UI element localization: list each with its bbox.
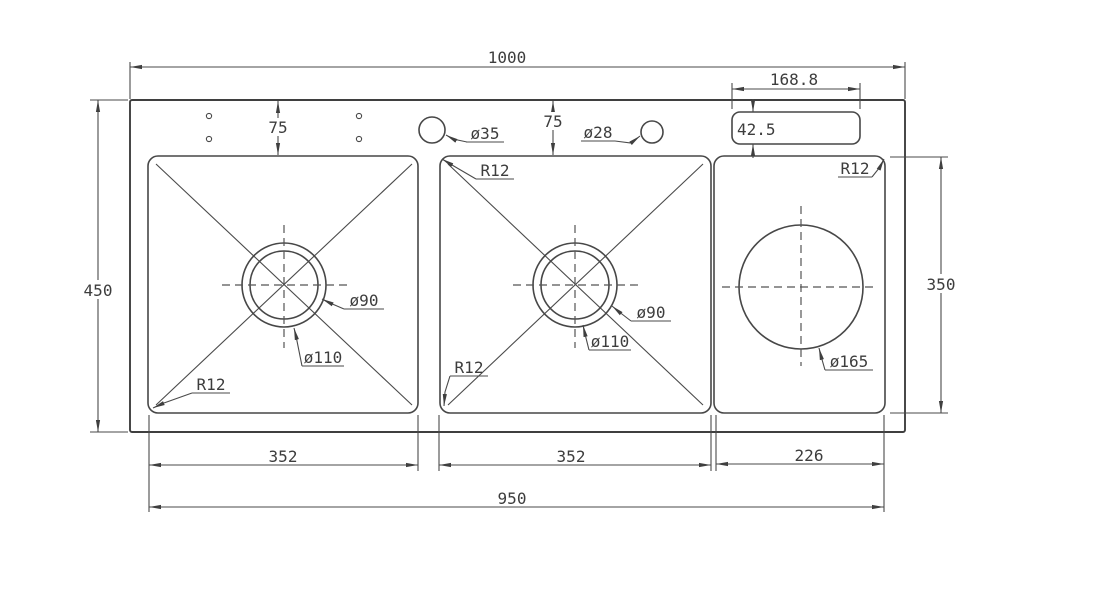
- leader-line: [446, 135, 467, 142]
- leader-line: [322, 299, 344, 309]
- faucet-hole-right-label: ø28: [584, 123, 613, 142]
- deck-hole: [206, 136, 211, 141]
- faucet-hole-left: [419, 117, 445, 143]
- dim-tray-depth-label: 42.5: [737, 120, 776, 139]
- leader-bowl2-corner-top: R12: [442, 159, 514, 180]
- leader-bowl2-corner-bottom: R12: [444, 358, 488, 406]
- faucet-hole-right: [641, 121, 663, 143]
- leader-compartment3-hole: ø165: [819, 348, 873, 371]
- dim-overall-depth: 450: [79, 100, 128, 432]
- dim-bowls-total-label: 950: [498, 489, 527, 508]
- bowl1-drain-rim-label: ø90: [350, 291, 379, 310]
- bowl1-drain-hole-label: ø110: [304, 348, 343, 367]
- leader-bowl1-drain-rim: ø90: [322, 291, 384, 310]
- bowl2-corner-radius-top-label: R12: [481, 161, 510, 180]
- leader-line: [612, 306, 631, 321]
- compartment3-corner-radius-label: R12: [841, 159, 870, 178]
- drawing-canvas: 1000 450 350 75 75 168.8 42.5: [0, 0, 1100, 600]
- deck-hole: [206, 113, 211, 118]
- leader-line: [583, 325, 589, 350]
- dim-bowl1-width-label: 352: [269, 447, 298, 466]
- dim-compartment3-depth-label: 350: [927, 275, 956, 294]
- dim-deck-offset-right-label: 75: [543, 112, 562, 131]
- deck-hole: [356, 136, 361, 141]
- leader-faucet-hole-left: ø35: [446, 124, 504, 143]
- leader-bowl2-drain-rim: ø90: [612, 303, 671, 322]
- leader-line: [442, 159, 476, 179]
- bowl1-corner-radius-label: R12: [197, 375, 226, 394]
- deck-hole: [356, 113, 361, 118]
- leader-line: [615, 136, 640, 143]
- dim-deck-offset-right: 75: [539, 101, 567, 155]
- leader-line: [444, 376, 450, 406]
- dim-bowl2-width-label: 352: [557, 447, 586, 466]
- bowl2-drain-hole-label: ø110: [591, 332, 630, 351]
- dim-tray-width-label: 168.8: [770, 70, 818, 89]
- dim-overall-depth-label: 450: [84, 281, 113, 300]
- dim-deck-offset-left-label: 75: [268, 118, 287, 137]
- leader-line: [819, 348, 825, 370]
- leader-line: [872, 159, 884, 177]
- bowl-1: [148, 156, 418, 413]
- compartment3-hole-label: ø165: [830, 352, 869, 371]
- sink-dimension-drawing: 1000 450 350 75 75 168.8 42.5: [0, 0, 1100, 600]
- leader-compartment3-corner: R12: [838, 159, 884, 178]
- leader-line: [294, 328, 302, 366]
- dim-compartment3-width-label: 226: [795, 446, 824, 465]
- dim-tray-depth: 42.5: [737, 99, 776, 158]
- dim-tray-width: 168.8: [732, 70, 860, 109]
- bowl2-drain-rim-label: ø90: [637, 303, 666, 322]
- compartment-3: [714, 156, 885, 413]
- leader-bowl1-corner: R12: [153, 375, 230, 408]
- faucet-hole-left-label: ø35: [471, 124, 500, 143]
- dim-overall-width-label: 1000: [488, 48, 527, 67]
- dim-bottom-chain: 352 352 226 950: [149, 415, 884, 512]
- leader-line: [153, 393, 192, 408]
- dim-compartment3-depth: 350: [890, 157, 961, 413]
- dim-deck-offset-left: 75: [264, 101, 292, 155]
- leader-faucet-hole-right: ø28: [581, 123, 640, 143]
- leader-bowl2-drain-hole: ø110: [583, 325, 631, 351]
- bowl2-corner-radius-bottom-label: R12: [455, 358, 484, 377]
